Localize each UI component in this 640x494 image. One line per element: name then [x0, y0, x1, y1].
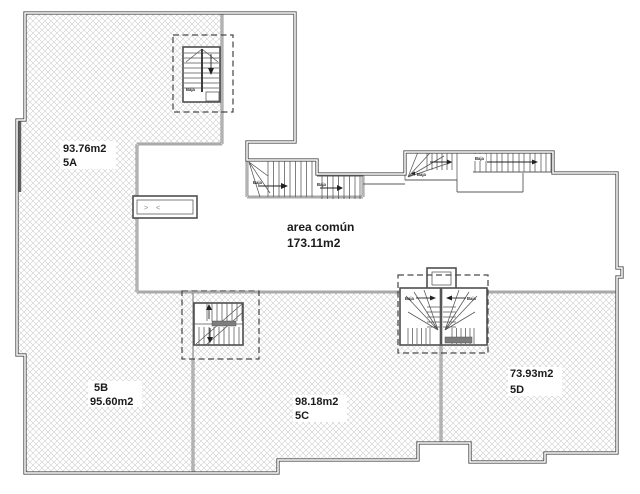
- stair-direction-label: Baja: [405, 296, 415, 301]
- door-symbol: > <: [133, 196, 197, 218]
- common-area-size-label: 173.11m2: [287, 236, 341, 250]
- stair-direction-label: Baja: [475, 156, 485, 161]
- stair-flight-2: Baja: [317, 176, 360, 199]
- unit-5d-area-label: 73.93m2: [510, 368, 553, 380]
- stair-flight-1: Baja: [249, 160, 312, 197]
- stairwell-5a: Baja: [183, 47, 220, 102]
- stair-direction-label: Baja: [417, 172, 427, 177]
- floorplan-drawing: Baja Baja Baja Baja Baja: [0, 0, 640, 494]
- unit-5d-id-label: 5D: [510, 384, 524, 396]
- unit-5a-area-label: 93.76m2: [63, 143, 106, 155]
- elevator-shaft: [427, 268, 456, 289]
- stair-flight-3: Baja: [474, 153, 551, 172]
- floorplan-page: Baja Baja Baja Baja Baja: [0, 0, 640, 494]
- unit-5a-id-label: 5A: [63, 157, 77, 169]
- stair-direction-label: Baja: [253, 180, 263, 185]
- unit-5b-id-label: 5B: [94, 382, 108, 394]
- unit-5c-area-label: 98.18m2: [295, 396, 338, 408]
- stairwell-5b-5c: [194, 303, 243, 345]
- stairwell-5c-5d: Baja Baja: [400, 268, 487, 345]
- stair-direction-label: Baja: [186, 87, 196, 92]
- common-area-name-label: area común: [287, 220, 354, 234]
- door-glyph-right: <: [156, 205, 160, 212]
- door-glyph-left: >: [144, 205, 148, 212]
- stair-winder: Baja: [405, 152, 457, 180]
- unit-5b-area-label: 95.60m2: [90, 396, 133, 408]
- stair-direction-label: Baja: [467, 296, 477, 301]
- stair-direction-label: Baja: [317, 182, 327, 187]
- unit-5c-id-label: 5C: [295, 410, 309, 422]
